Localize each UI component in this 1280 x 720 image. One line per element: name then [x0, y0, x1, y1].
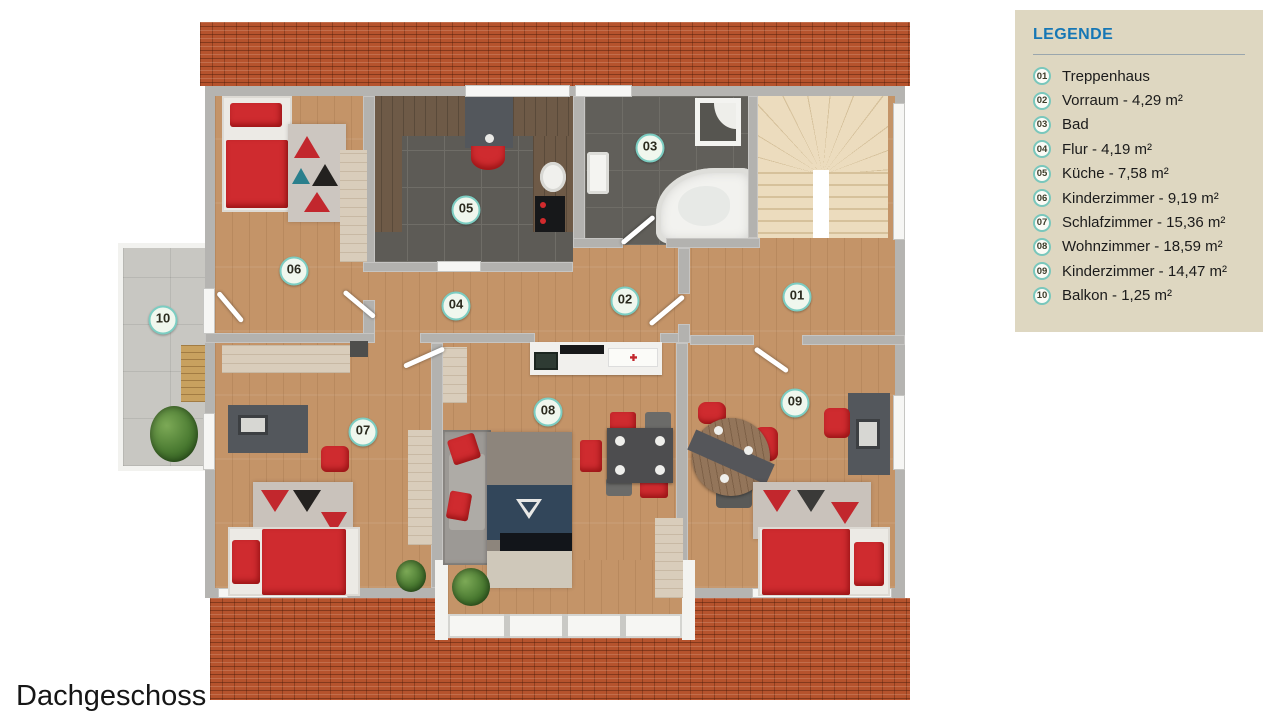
washbasin: [587, 152, 609, 194]
wall-vorraum-hall-a: [678, 248, 690, 294]
legend-row: 05 Küche - 7,58 m²: [1033, 162, 1249, 186]
stairs-winders: [757, 96, 888, 172]
bed-pillow-room07: [232, 540, 260, 584]
cooktop-knob: [540, 218, 546, 224]
wall-hall-south-b: [802, 335, 905, 345]
shower: [695, 98, 741, 146]
legend-label: Flur - 4,19 m²: [1062, 141, 1152, 158]
legend-panel: LEGENDE 01 Treppenhaus 02 Vorraum - 4,29…: [1015, 10, 1263, 332]
floorplan-canvas: 01 02 03 04 05 06 07 08 09 10 LEGENDE 01…: [0, 0, 1280, 720]
roof-top: [200, 22, 910, 86]
plate: [714, 426, 723, 435]
rug-light-section: [487, 551, 572, 588]
bed-duvet-room06: [226, 140, 288, 208]
legend-label: Kinderzimmer - 14,47 m²: [1062, 263, 1227, 280]
kitchen-sink: [540, 162, 566, 192]
rug-room06: [288, 124, 346, 222]
table-bench: [687, 429, 775, 484]
stairs-flight-right: [829, 172, 888, 238]
kitchen-cooktop: [535, 196, 565, 232]
rug-pattern: [292, 168, 310, 184]
room-marker-01: 01: [783, 283, 812, 312]
room-marker-10: 10: [149, 306, 178, 335]
wall-07-08: [431, 343, 443, 588]
bed-duvet-room07: [262, 529, 346, 595]
window-mullion: [504, 614, 510, 638]
legend-label: Wohnzimmer - 18,59 m²: [1062, 238, 1223, 255]
shelf-room08: [655, 518, 683, 598]
bed-duvet-room09: [762, 529, 850, 595]
legend-badge: 09: [1033, 262, 1051, 280]
stairs-flight-left: [757, 172, 813, 238]
window-left-room07: [203, 413, 215, 470]
wardrobe-room07: [222, 345, 350, 373]
rug-pattern: [763, 490, 791, 512]
room-marker-05: 05: [452, 196, 481, 225]
wardrobe-room06: [340, 150, 367, 262]
rug-pattern: [312, 164, 338, 186]
room-marker-07: 07: [349, 418, 378, 447]
legend-label: Vorraum - 4,29 m²: [1062, 92, 1183, 109]
stairs-divider: [813, 170, 829, 238]
room-marker-03: 03: [636, 134, 665, 163]
cabinet-small-room07: [350, 341, 368, 357]
wall-bath-stairs: [748, 96, 758, 238]
dining-table: [607, 428, 673, 483]
legend-row: 04 Flur - 4,19 m²: [1033, 137, 1249, 161]
laptop: [856, 419, 880, 449]
legend-row: 09 Kinderzimmer - 14,47 m²: [1033, 259, 1249, 283]
legend-badge: 06: [1033, 189, 1051, 207]
wall-hall-south-a: [690, 335, 754, 345]
plate: [744, 446, 753, 455]
window-mullion: [620, 614, 626, 638]
legend-label: Schlafzimmer - 15,36 m²: [1062, 214, 1225, 231]
dormer-wall-right: [682, 560, 695, 640]
red-cross-icon: [630, 354, 637, 361]
bed-pillow-room09: [854, 542, 884, 586]
room-marker-02: 02: [611, 287, 640, 316]
legend-badge: 08: [1033, 238, 1051, 256]
rug-pattern: [294, 136, 320, 158]
laptop: [534, 352, 558, 370]
balcony-door-frame: [203, 288, 215, 334]
bathtub-basin: [678, 186, 730, 226]
first-aid-box: [608, 348, 658, 367]
rug-emblem-inner: [521, 502, 537, 513]
plate: [655, 465, 665, 475]
sideboard-tray: [560, 345, 604, 354]
room-marker-06: 06: [280, 257, 309, 286]
desk-room07: [228, 405, 308, 453]
dining-chair-red: [580, 440, 602, 472]
legend-badge: 10: [1033, 287, 1051, 305]
rug-pattern: [797, 490, 825, 512]
kitchen-pass-window: [437, 261, 481, 272]
legend-row: 01 Treppenhaus: [1033, 64, 1249, 88]
legend-badge: 05: [1033, 165, 1051, 183]
wall-corridor-south-b: [420, 333, 535, 343]
balcony-plant: [150, 406, 198, 462]
legend-badge: 01: [1033, 67, 1051, 85]
plate: [720, 474, 729, 483]
rug-emblem: [516, 499, 542, 519]
sideboard-room08: [530, 342, 662, 375]
floor-name-label: Dachgeschoss: [16, 680, 206, 713]
legend-label: Balkon - 1,25 m²: [1062, 287, 1172, 304]
wall-bath-bottom-left: [573, 238, 623, 248]
rug-black-section: [500, 533, 572, 551]
window-top-bath: [575, 85, 632, 97]
plate: [615, 436, 625, 446]
legend-badge: 03: [1033, 116, 1051, 134]
legend-row: 08 Wohnzimmer - 18,59 m²: [1033, 235, 1249, 259]
room-marker-08: 08: [534, 398, 563, 427]
legend-label: Kinderzimmer - 9,19 m²: [1062, 190, 1219, 207]
legend-row: 02 Vorraum - 4,29 m²: [1033, 88, 1249, 112]
island-knob: [485, 134, 494, 143]
room-marker-09: 09: [781, 389, 810, 418]
cooktop-knob: [540, 202, 546, 208]
wall-bath-left: [573, 96, 585, 248]
desk-room09: [848, 393, 890, 475]
dormer-window-band: [448, 614, 682, 638]
rug-navy-section: [487, 485, 572, 540]
chair-room07: [321, 446, 349, 472]
rug-pattern: [293, 490, 321, 512]
plant-room07: [396, 560, 426, 592]
laptop: [238, 415, 268, 435]
legend-row: 07 Schlafzimmer - 15,36 m²: [1033, 210, 1249, 234]
legend-row: 10 Balkon - 1,25 m²: [1033, 284, 1249, 308]
shower-tray: [714, 103, 736, 129]
rug-room08: [487, 432, 572, 588]
legend-label: Küche - 7,58 m²: [1062, 165, 1169, 182]
plant-room08: [452, 568, 490, 606]
rug-pattern: [261, 490, 289, 512]
kitchen-island: [465, 96, 513, 148]
legend-badge: 04: [1033, 140, 1051, 158]
rug-pattern: [304, 192, 330, 212]
wall-vorraum-hall-b: [678, 324, 690, 343]
legend-label: Treppenhaus: [1062, 68, 1150, 85]
shelf-room07: [408, 430, 432, 545]
rug-pattern: [831, 502, 859, 524]
plate: [655, 436, 665, 446]
bed-pillow-room06: [230, 103, 282, 127]
window-top-kitchen: [465, 85, 570, 97]
chair-room09: [824, 408, 850, 438]
dormer-wall-left: [435, 560, 448, 640]
legend-badge: 07: [1033, 214, 1051, 232]
wall-bath-bottom-right: [666, 238, 760, 248]
plate: [615, 465, 625, 475]
window-right-stairs: [893, 103, 905, 240]
legend-row: 06 Kinderzimmer - 9,19 m²: [1033, 186, 1249, 210]
wardrobe-room08: [443, 347, 467, 403]
legend-badge: 02: [1033, 92, 1051, 110]
kitchen-stool: [471, 146, 505, 170]
legend-divider: [1033, 54, 1245, 55]
legend-title: LEGENDE: [1033, 26, 1249, 44]
window-right-room09: [893, 395, 905, 470]
legend-label: Bad: [1062, 116, 1089, 133]
legend-row: 03 Bad: [1033, 113, 1249, 137]
room-marker-04: 04: [442, 292, 471, 321]
window-mullion: [562, 614, 568, 638]
